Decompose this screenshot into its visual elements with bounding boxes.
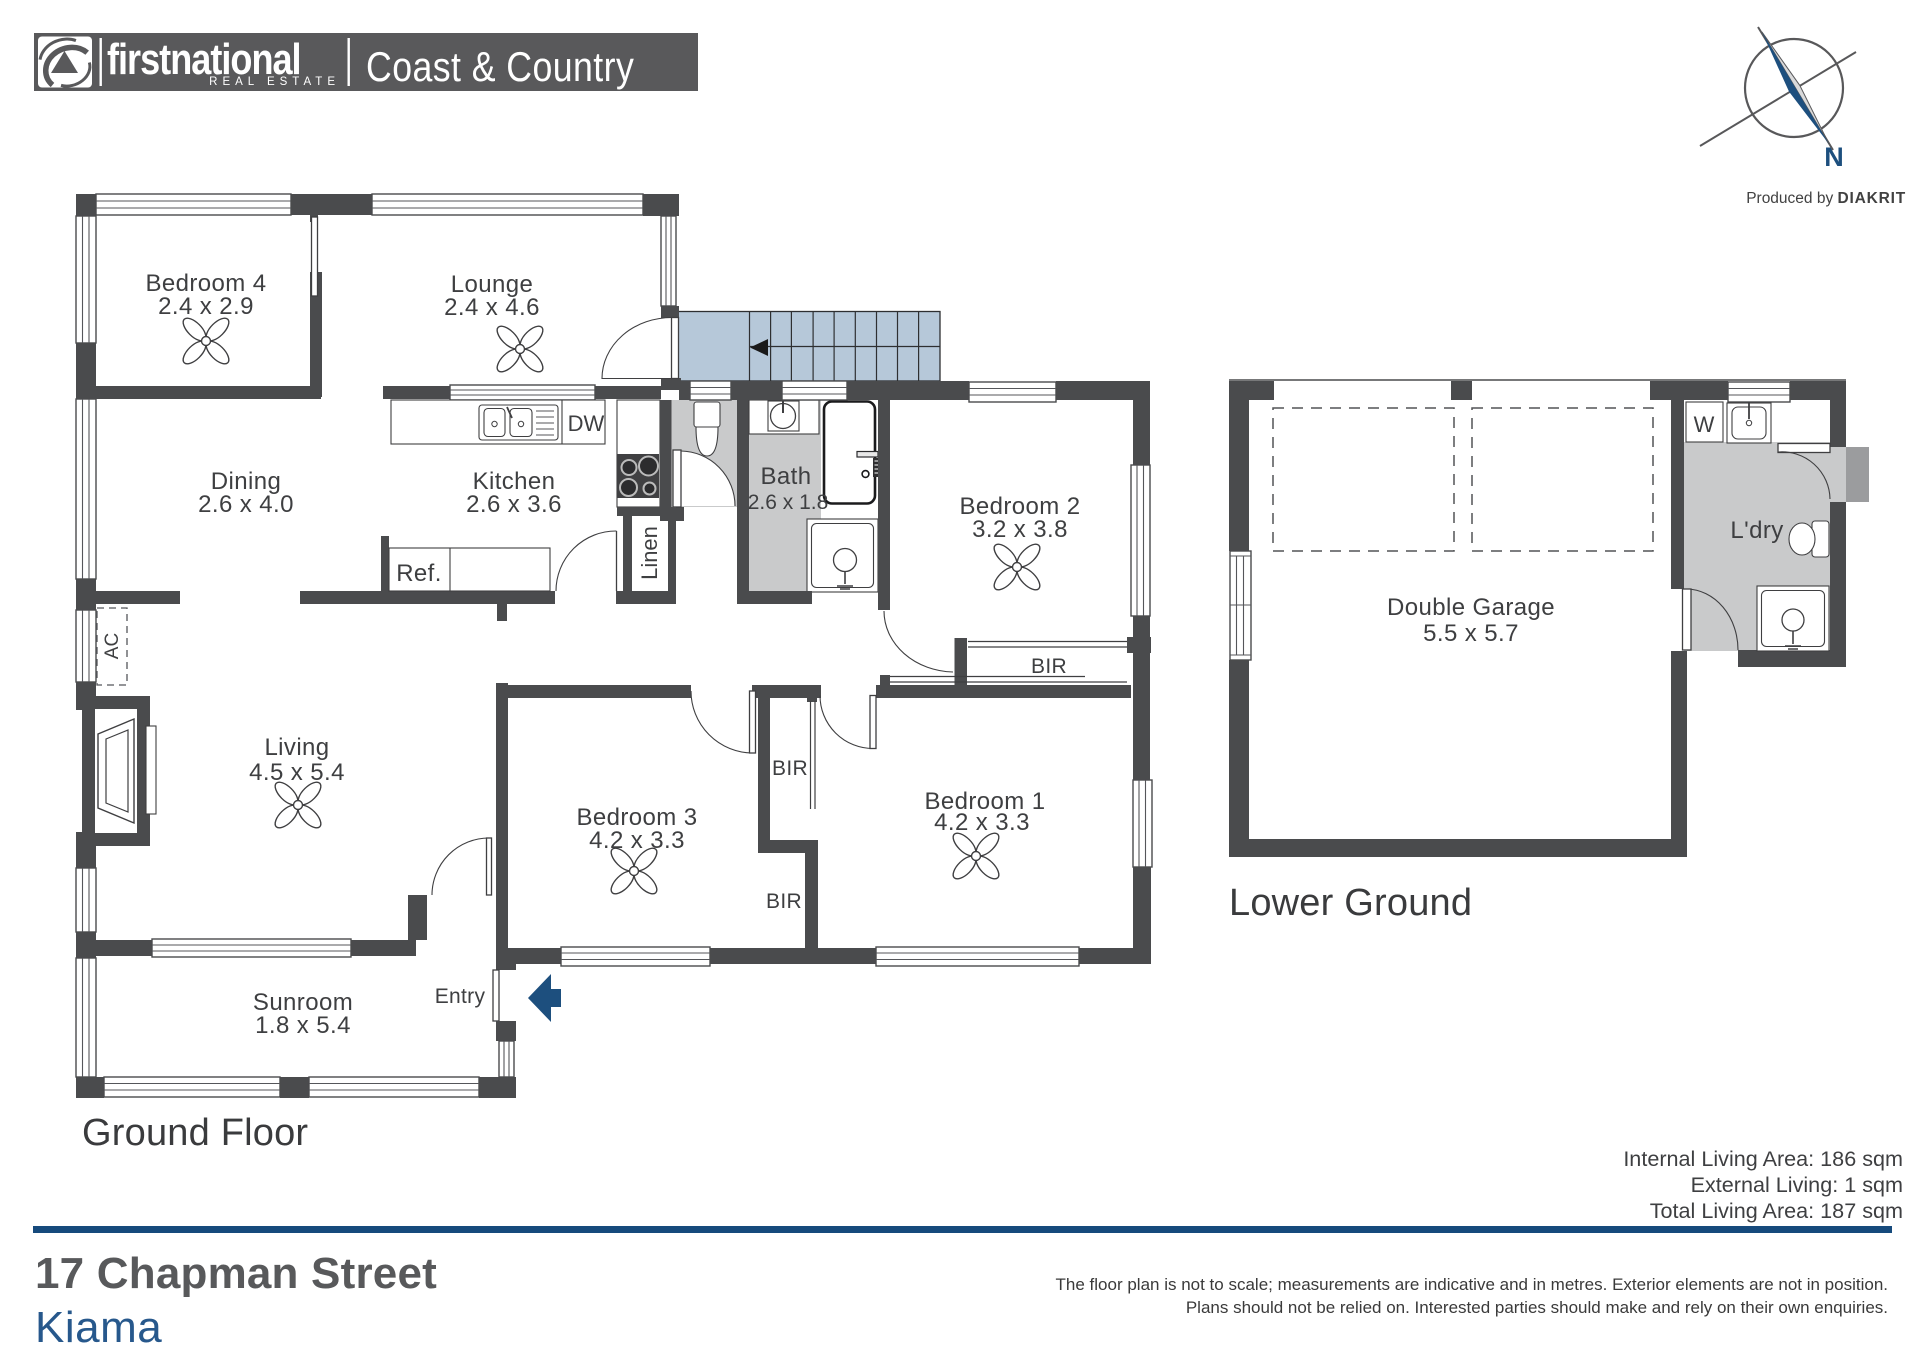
svg-text:4.2 x 3.3: 4.2 x 3.3 (589, 827, 685, 854)
svg-text:Plans should not be relied on.: Plans should not be relied on. Intereste… (1186, 1298, 1888, 1317)
svg-text:AC: AC (102, 633, 123, 659)
svg-text:1.8 x 5.4: 1.8 x 5.4 (255, 1012, 351, 1039)
svg-text:2.6 x 3.6: 2.6 x 3.6 (466, 491, 562, 518)
svg-text:Produced by DIAKRIT: Produced by DIAKRIT (1746, 190, 1906, 207)
svg-text:2.6 x 4.0: 2.6 x 4.0 (198, 491, 294, 518)
svg-text:Lower Ground: Lower Ground (1229, 882, 1472, 924)
svg-text:BIR: BIR (766, 890, 802, 913)
svg-text:Ground Floor: Ground Floor (82, 1112, 308, 1154)
svg-text:External Living: 1 sqm: External Living: 1 sqm (1691, 1172, 1903, 1197)
svg-text:2.4 x 2.9: 2.4 x 2.9 (158, 293, 254, 320)
svg-text:N: N (1824, 142, 1844, 172)
svg-text:Double Garage: Double Garage (1387, 594, 1555, 621)
svg-text:2.6 x 1.8: 2.6 x 1.8 (748, 491, 829, 514)
svg-text:2.4 x 4.6: 2.4 x 4.6 (444, 294, 540, 321)
svg-text:Coast & Country: Coast & Country (366, 44, 634, 90)
svg-text:Internal Living Area: 186 sqm: Internal Living Area: 186 sqm (1623, 1146, 1903, 1171)
svg-text:Bath: Bath (761, 463, 812, 490)
svg-text:DW: DW (568, 411, 605, 436)
svg-text:L'dry: L'dry (1730, 517, 1783, 544)
svg-text:3.2 x 3.8: 3.2 x 3.8 (972, 516, 1068, 543)
svg-text:Total Living Area: 187 sqm: Total Living Area: 187 sqm (1650, 1198, 1903, 1223)
svg-text:4.5 x 5.4: 4.5 x 5.4 (249, 759, 345, 786)
svg-text:Entry: Entry (435, 985, 486, 1008)
svg-text:17 Chapman Street: 17 Chapman Street (35, 1249, 437, 1298)
svg-text:Living: Living (264, 734, 329, 761)
svg-text:Kiama: Kiama (35, 1303, 162, 1352)
svg-text:5.5 x 5.7: 5.5 x 5.7 (1423, 620, 1519, 647)
svg-text:4.2 x 3.3: 4.2 x 3.3 (934, 809, 1030, 836)
svg-text:REAL ESTATE: REAL ESTATE (209, 76, 340, 88)
svg-text:Linen: Linen (637, 526, 662, 580)
svg-text:W: W (1694, 412, 1715, 437)
svg-text:Ref.: Ref. (396, 560, 442, 587)
svg-text:The floor plan is not to scale: The floor plan is not to scale; measurem… (1056, 1275, 1888, 1294)
svg-text:BIR: BIR (772, 757, 808, 780)
svg-text:BIR: BIR (1031, 655, 1067, 678)
